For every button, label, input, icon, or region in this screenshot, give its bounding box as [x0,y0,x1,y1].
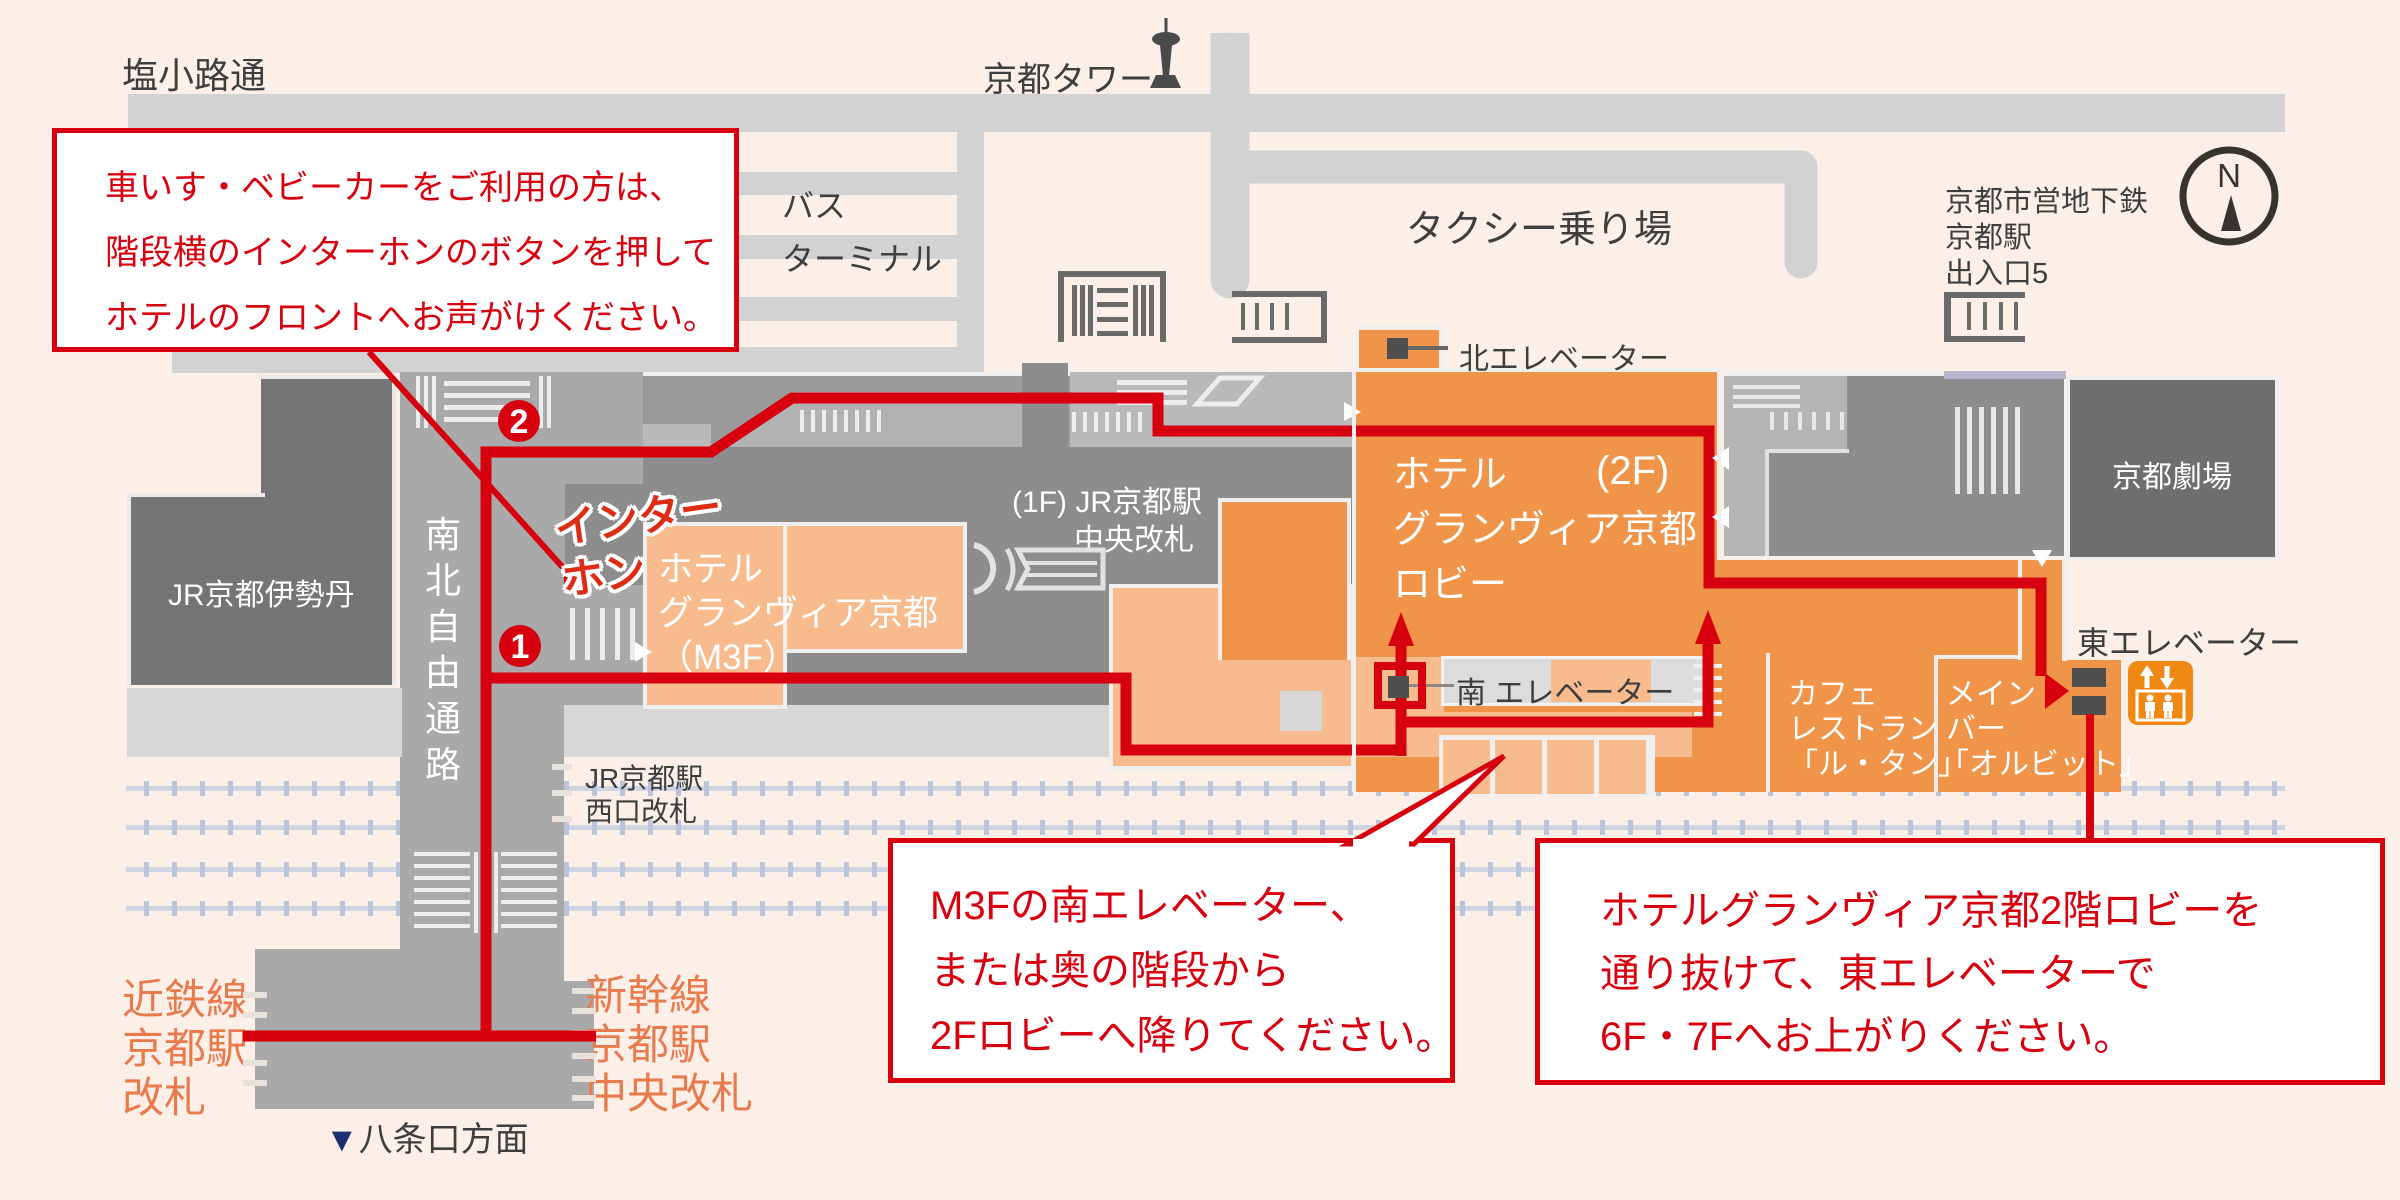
svg-text:N: N [2217,157,2241,194]
svg-text:2: 2 [510,403,529,441]
svg-text:1: 1 [511,628,530,666]
